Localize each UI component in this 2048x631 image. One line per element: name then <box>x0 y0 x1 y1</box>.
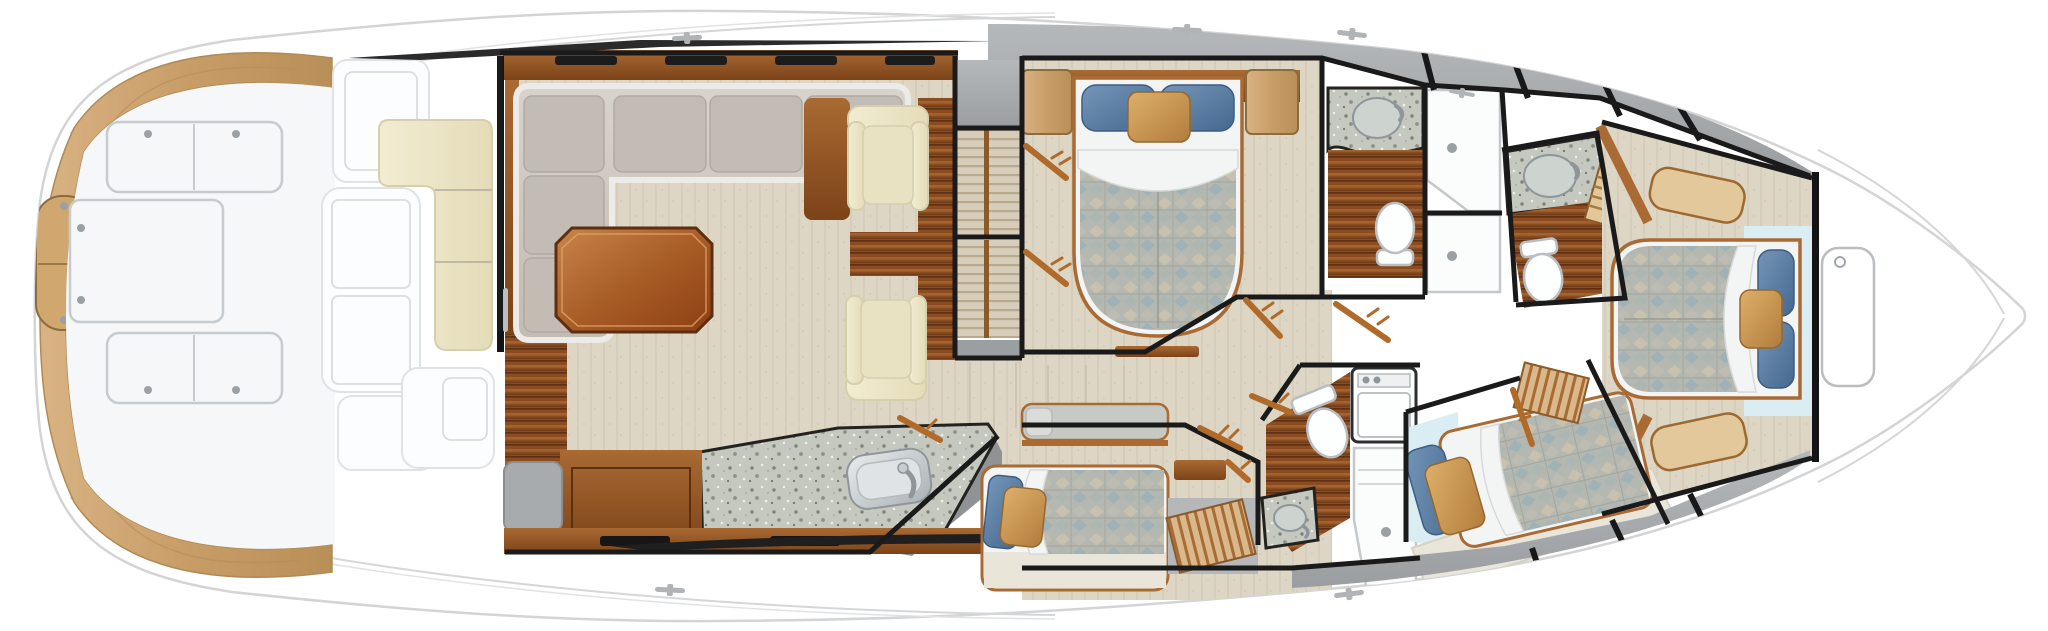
toilet <box>1376 203 1414 265</box>
accent-pillow <box>1740 290 1782 348</box>
bow-bulkhead <box>1812 172 1819 462</box>
deck-cleat <box>1336 26 1367 42</box>
stair-landing <box>956 60 1020 128</box>
double-berth <box>982 466 1168 590</box>
stair-stringer <box>984 240 989 338</box>
shower-drain <box>1381 527 1391 537</box>
duvet <box>1030 470 1164 554</box>
stair-base <box>956 340 1020 356</box>
vanity-sink <box>1353 98 1401 138</box>
mezzanine <box>322 60 494 470</box>
engine-room-access <box>322 188 420 392</box>
deck-hatch-fwd <box>107 333 282 403</box>
galley-gray-cabinet <box>504 462 562 532</box>
accent-pillow <box>999 486 1047 548</box>
vent <box>555 56 617 65</box>
side-cabinet <box>804 98 850 220</box>
master-bed <box>1074 78 1242 336</box>
deck-hatch-aft <box>107 122 282 192</box>
sofa-cushion <box>524 96 604 172</box>
deck-hatch-center <box>70 200 223 322</box>
galley-sink <box>845 446 934 511</box>
nightstand <box>1246 70 1298 134</box>
pillow <box>1026 408 1052 436</box>
shower-drain <box>1447 251 1457 261</box>
yacht-floor-plan <box>0 0 2048 631</box>
vent <box>665 56 727 65</box>
armchair <box>846 296 926 400</box>
vent <box>885 56 935 65</box>
salon-wood-floor-entry <box>505 332 567 478</box>
stair-stringer <box>984 130 989 235</box>
accent-pillow <box>1128 92 1190 142</box>
mezzanine-seat-base <box>402 368 494 468</box>
vent <box>775 56 837 65</box>
dresser <box>1174 460 1226 480</box>
vanity-sink <box>1274 505 1306 531</box>
armchair <box>848 106 928 210</box>
salon-wood-floor-center <box>850 232 950 276</box>
sofa-cushion <box>710 96 802 172</box>
cockpit <box>66 83 335 549</box>
salon <box>497 50 958 480</box>
sofa-cushion <box>614 96 706 172</box>
vip-bed <box>1612 240 1800 398</box>
anchor-hatch <box>1822 248 1874 386</box>
coffee-table <box>556 228 712 332</box>
door-handle <box>503 288 508 332</box>
shower <box>1427 215 1500 292</box>
nightstand <box>1022 70 1072 134</box>
shower-drain <box>1447 143 1457 153</box>
vanity-sink <box>1524 155 1576 197</box>
